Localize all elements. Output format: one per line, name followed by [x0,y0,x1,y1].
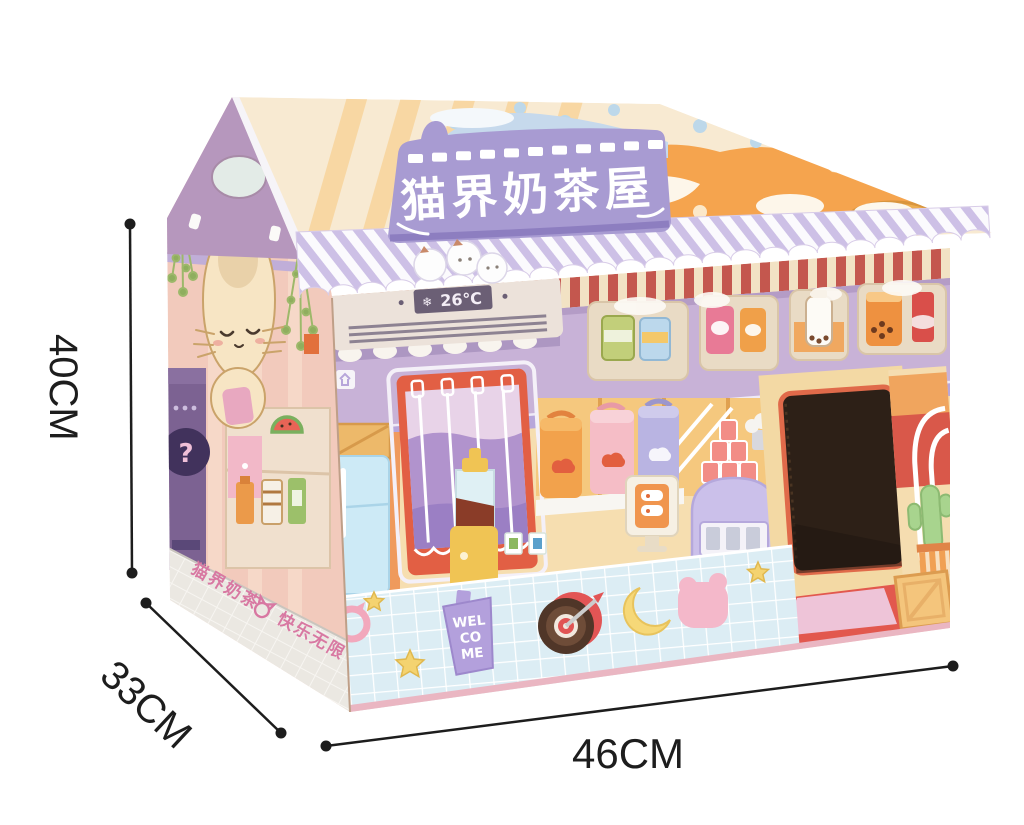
crate-small [332,424,390,458]
width-label: 46CM [572,730,684,777]
crate-bottom-right [895,571,953,629]
dimension-annotation-height: 40CM [41,219,138,579]
house-sticker-icon [336,370,355,389]
carry-handle-hole [212,156,266,198]
side-vending-machine: ? [162,368,210,570]
house-front-wall: ❄ 26℃ [328,248,961,714]
menu-frame-3 [790,290,848,360]
plant-pot [304,334,319,354]
side-shelf-drinks [226,408,330,568]
canister-orange [540,413,582,498]
vending-question-mark: ? [178,439,193,469]
ac-temperature: 26℃ [440,289,483,311]
cat-house-illustration: ? [0,0,1024,825]
height-label: 40CM [41,334,85,441]
snowflake-icon: ❄ [422,295,433,310]
canister-lilac [638,401,679,488]
product-photo: ? [0,0,1024,825]
watermelon-icon [272,417,302,432]
welcome-line-3: ME [460,645,484,663]
depth-label: 33CM [92,652,200,757]
blender [450,448,498,590]
shop-sign: 猫界奶茶屋 [388,121,671,243]
